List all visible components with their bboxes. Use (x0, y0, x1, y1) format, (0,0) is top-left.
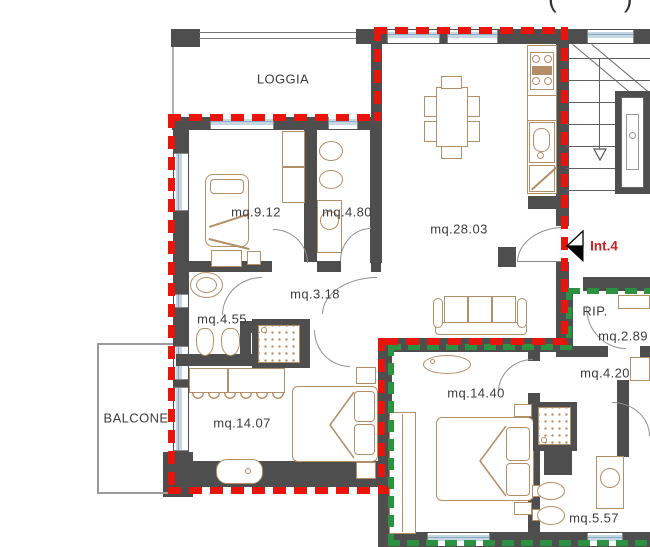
wall-segment (544, 450, 572, 475)
elevator-pulley (629, 132, 636, 139)
nightstand (356, 367, 376, 384)
cooktop-center (532, 66, 552, 75)
door-arc (222, 277, 262, 315)
door-arc-entrance (517, 227, 564, 262)
bed-pillow (354, 391, 375, 422)
room-label-bedroom3: mq.14.40 (447, 386, 504, 401)
dresser (228, 368, 285, 393)
sofa-back (435, 322, 527, 335)
red-boundary (374, 28, 381, 121)
bed-pillow (210, 179, 244, 194)
nightstand (514, 502, 532, 515)
floor-plan: ( ) (0, 0, 650, 547)
door-arc (273, 229, 308, 263)
door-arc (612, 402, 650, 436)
wall-segment (317, 261, 341, 272)
burner (544, 77, 552, 85)
dresser (189, 368, 228, 393)
room-label-living: mq.28.03 (430, 222, 487, 237)
ottoman-detail (245, 468, 251, 474)
toilet (537, 482, 565, 500)
toilet (221, 328, 240, 356)
counter-divider (528, 95, 556, 96)
shower-head (261, 327, 267, 333)
sofa-cushion (444, 296, 468, 323)
room-label-balcony: BALCONE (104, 411, 169, 426)
sink (600, 468, 620, 488)
room-label-bath3: mq.5.57 (569, 511, 619, 526)
loggia-side-line (172, 47, 174, 117)
bed-pillow (354, 424, 375, 455)
sofa-cushion (492, 296, 516, 323)
chair (467, 121, 480, 142)
room-label-hallway2: mq.4.20 (580, 366, 630, 381)
room-label-bedroom2: mq.14.07 (213, 416, 270, 431)
kitchen-sink (533, 128, 550, 152)
dining-table (436, 87, 468, 147)
bench-ottoman (216, 459, 263, 484)
sofa-armrest (433, 298, 443, 328)
wall-segment (370, 117, 382, 263)
green-boundary (388, 540, 650, 546)
bed-pillow (506, 463, 530, 496)
stairs-down-arrow-icon (592, 148, 608, 161)
door-leaf (517, 261, 564, 262)
burner (544, 55, 552, 63)
chair (441, 76, 462, 89)
room-label-bath2: mq.4.55 (197, 312, 247, 327)
wall-segment (171, 29, 200, 47)
door-arc (340, 228, 371, 261)
unit-label: Int.4 (590, 239, 618, 254)
door-arc (314, 330, 350, 367)
green-boundary (568, 288, 650, 294)
bed-fold (476, 424, 508, 498)
red-boundary (374, 27, 568, 34)
red-boundary (561, 27, 568, 345)
room-label-storage-area: mq.2.89 (598, 329, 648, 344)
wall-segment (176, 354, 252, 366)
wall-segment (498, 247, 516, 267)
chair (441, 146, 462, 159)
shower-head (541, 437, 547, 443)
oval-table (423, 355, 471, 374)
bidet (196, 328, 214, 356)
chair (424, 96, 437, 117)
wall-segment (304, 124, 317, 262)
bed-pillow (506, 427, 530, 461)
counter-divider (528, 120, 556, 121)
dresser-scallop-edge (190, 393, 284, 401)
red-boundary (385, 338, 568, 345)
loggia-railing (199, 32, 356, 39)
chair (467, 96, 480, 117)
red-boundary (168, 114, 381, 121)
sofa-armrest (517, 298, 527, 328)
shelf (630, 357, 650, 381)
wall-segment (640, 346, 650, 357)
stairs-direction-line (599, 58, 600, 150)
room-label-hallway: mq.3.18 (290, 287, 340, 302)
room-label-bath1: mq.4.80 (322, 205, 372, 220)
table-detail (430, 359, 435, 364)
room-label-storage: RIP. (582, 304, 607, 319)
cut-off-title-fragment: ( ) (548, 0, 650, 14)
window (174, 153, 188, 211)
red-boundary (168, 487, 389, 494)
burner (532, 77, 540, 85)
wardrobe (282, 131, 305, 167)
nightstand (356, 462, 376, 479)
stool (247, 251, 261, 265)
chair (424, 121, 437, 142)
red-boundary (168, 115, 175, 493)
elevator-mechanism (626, 114, 639, 170)
window (174, 294, 188, 308)
bed-fold (326, 390, 356, 460)
entrance-arrow-icon (564, 229, 586, 263)
sink-basin (196, 277, 217, 293)
bidet (537, 506, 565, 525)
nightstand (514, 404, 532, 417)
wall-segment (528, 196, 556, 209)
wardrobe-rail (402, 414, 403, 532)
burner (532, 55, 540, 63)
toilet (319, 141, 343, 161)
red-boundary (378, 338, 385, 494)
sofa-cushion (468, 296, 492, 323)
faucet (537, 152, 544, 159)
window (587, 30, 634, 43)
bidet (319, 170, 343, 189)
window (174, 387, 188, 451)
desk (211, 250, 242, 267)
room-label-bedroom1: mq.9.12 (231, 205, 281, 220)
green-boundary (388, 344, 394, 547)
room-label-loggia: LOGGIA (257, 72, 309, 87)
wardrobe (282, 167, 305, 203)
